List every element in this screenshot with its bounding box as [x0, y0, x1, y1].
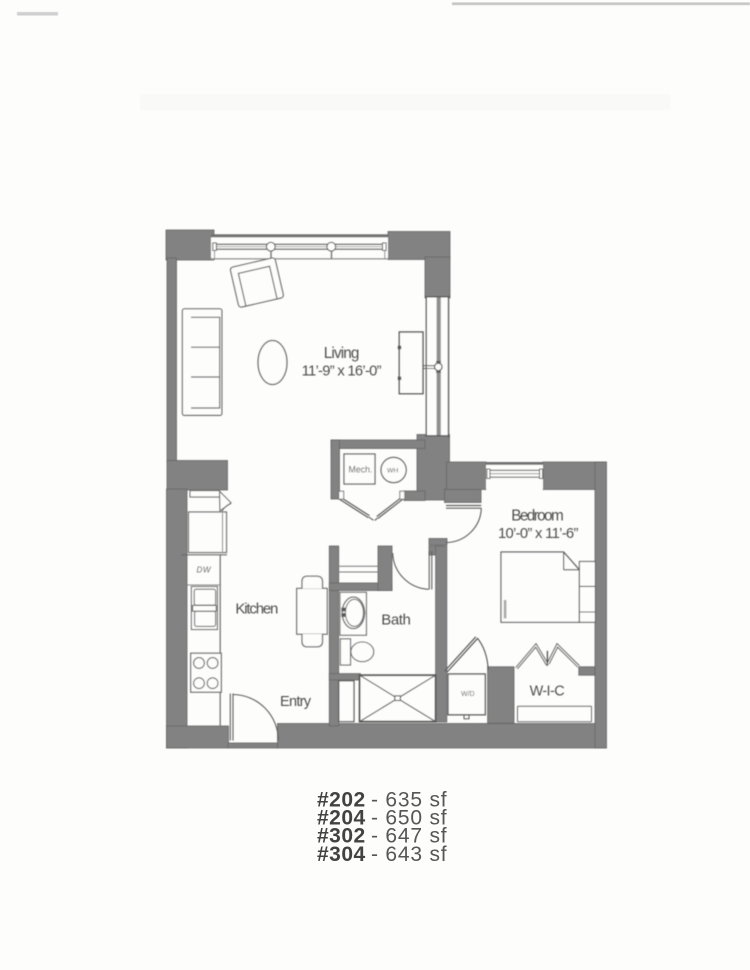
svg-text:Entry: Entry [280, 694, 312, 710]
svg-text:DW: DW [197, 566, 212, 575]
svg-text:Kitchen: Kitchen [235, 600, 278, 617]
svg-text:Bath: Bath [381, 611, 411, 628]
svg-text:#304: #304 [317, 843, 366, 866]
svg-text:W-I-C: W-I-C [530, 684, 565, 700]
svg-text:Living: Living [324, 345, 360, 362]
svg-text:10’-0” x 11’-6”: 10’-0” x 11’-6” [498, 526, 578, 542]
svg-text:11’-9” x 16’-0”: 11’-9” x 16’-0” [302, 364, 382, 380]
svg-text:- 643 sf: - 643 sf [371, 843, 447, 866]
svg-text:Mech.: Mech. [349, 465, 373, 475]
svg-text:WH: WH [387, 468, 398, 475]
svg-text:W/D: W/D [461, 691, 475, 698]
svg-text:Bedroom: Bedroom [511, 507, 563, 524]
